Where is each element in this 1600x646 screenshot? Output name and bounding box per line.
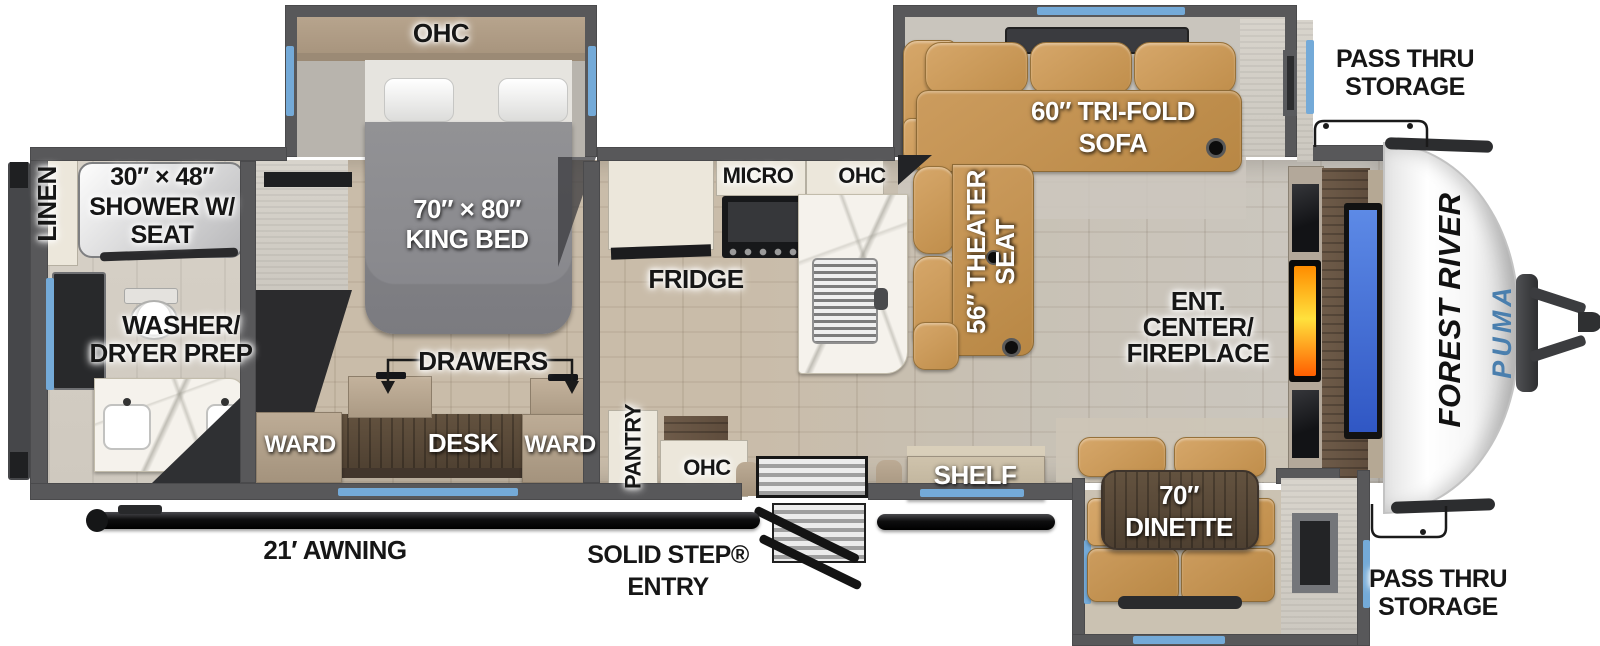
floorplan-canvas: LINEN 30″ × 48″ SHOWER W/ SEAT WASHER/ D…	[0, 0, 1600, 646]
shower-seat-label: SEAT	[78, 222, 246, 248]
micro-label: MICRO	[722, 164, 794, 187]
dinette-label-name: DINETTE	[1103, 514, 1255, 541]
kitchen-ohc-label: OHC	[826, 164, 898, 187]
theater-seat-label-line2: SEAT	[991, 157, 1020, 347]
passthru-bottom-label-line2: STORAGE	[1358, 594, 1518, 620]
dinette-label-size: 70″	[1103, 482, 1255, 509]
fridge-label: FRIDGE	[640, 266, 752, 293]
entry-label-line1: SOLID STEP®	[578, 542, 758, 568]
ent-label-line3: FIREPLACE	[1108, 340, 1288, 367]
pantry-label: PANTRY	[621, 397, 644, 497]
entry-label-line2: ENTRY	[578, 574, 758, 600]
sofa-label-line1: 60″ TRI-FOLD	[1008, 98, 1218, 125]
passthru-top-label-line2: STORAGE	[1325, 74, 1485, 100]
sofa-label-line2: SOFA	[1008, 130, 1218, 157]
washer-label-line2: DRYER PREP	[76, 340, 266, 367]
shower-size-label: 30″ × 48″	[78, 164, 246, 190]
ward-right-label: WARD	[520, 432, 600, 457]
model-logo: PUMA	[1487, 256, 1513, 406]
drawers-label: DRAWERS	[403, 348, 563, 375]
passthru-bottom-label-line1: PASS THRU	[1358, 566, 1518, 592]
king-bed-label-line1: 70″ × 80″	[362, 196, 572, 223]
passthru-bottom-bracket	[1372, 504, 1446, 537]
king-bed-label-line2: KING BED	[362, 226, 572, 253]
theater-seat-label: 56″ THEATER SEAT	[962, 157, 1018, 347]
bedroom-ohc-label: OHC	[381, 20, 501, 47]
shower-label: SHOWER W/	[78, 194, 246, 220]
linen-label: LINEN	[34, 147, 60, 261]
theater-seat-label-line1: 56″ THEATER	[962, 157, 991, 347]
washer-label-line1: WASHER/	[86, 312, 276, 339]
ohc-lower-label: OHC	[667, 456, 747, 479]
awning-label: 21′ AWNING	[235, 537, 435, 564]
shelf-label: SHELF	[913, 462, 1037, 489]
ward-left-label: WARD	[258, 432, 342, 457]
brand-logo: FOREST RIVER	[1432, 160, 1464, 460]
passthru-top-label-line1: PASS THRU	[1325, 46, 1485, 72]
